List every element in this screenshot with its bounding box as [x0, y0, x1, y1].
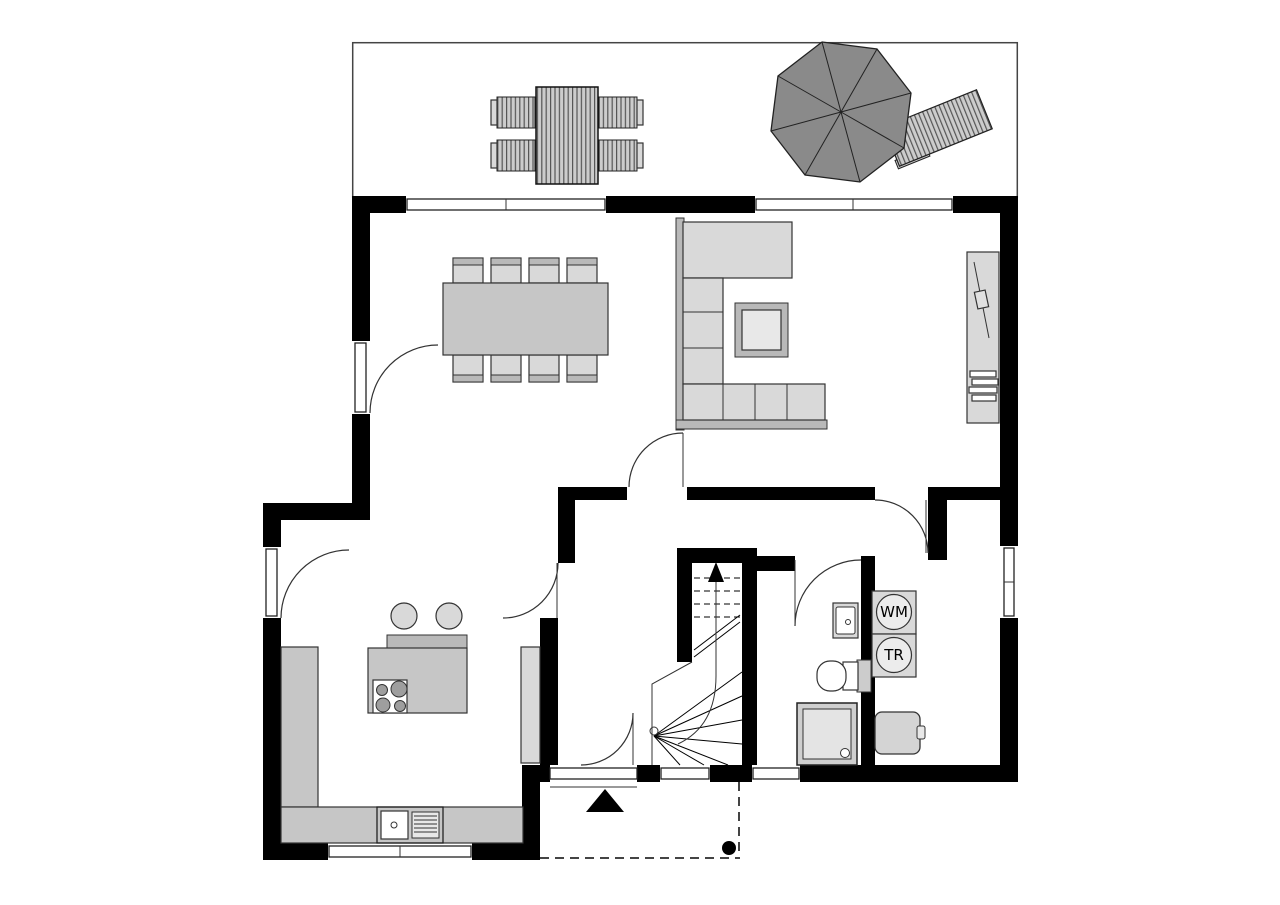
kitchen-counter-icon: [521, 647, 540, 763]
door-kitchen-hall: [503, 563, 558, 618]
bar-stool-icon: [436, 603, 462, 629]
sofa-top-section: [683, 222, 792, 278]
boiler-handle: [917, 726, 925, 739]
dining-chairs-top: [453, 258, 597, 283]
stair-cut-line: [694, 615, 740, 650]
wall-stub-left: [558, 487, 575, 563]
sofa-back-bottom: [676, 420, 827, 429]
sofa-left-section: [683, 278, 723, 384]
staircase-icon: [650, 562, 742, 765]
wall-stub-right: [928, 487, 947, 560]
shower-drain: [841, 749, 850, 758]
boiler-icon: [875, 712, 925, 754]
wall-hall-left: [540, 618, 558, 765]
floor-plan-page: WM TR: [0, 0, 1280, 905]
toilet-bowl: [817, 661, 846, 691]
outdoor-chair-icon: [497, 140, 535, 171]
kitchen-counter-icon: [281, 647, 318, 807]
stair-cut-line: [694, 622, 740, 657]
terrace: [353, 42, 1018, 197]
bar-stool-icon: [391, 603, 417, 629]
toilet-cistern: [857, 660, 871, 692]
outdoor-chair-icon: [599, 140, 637, 171]
outdoor-chair-arm: [637, 100, 643, 125]
dining-set: [443, 258, 608, 382]
outdoor-chair-arm: [491, 143, 497, 168]
washing-machine-icon: WM: [872, 591, 916, 634]
dryer-label: TR: [883, 646, 904, 664]
washing-machine-label: WM: [880, 603, 908, 621]
dining-table-icon: [443, 283, 608, 355]
cooktop-icon: [373, 680, 407, 713]
toilet-icon: [817, 660, 871, 692]
kitchen-island-icon: [368, 635, 467, 713]
outdoor-chair-arm: [637, 143, 643, 168]
wall-openings: [263, 196, 1018, 860]
floor-plan-canvas: WM TR: [0, 0, 1280, 905]
walls: [263, 196, 1018, 860]
wall-entry-connector: [522, 765, 540, 860]
bathroom: [797, 603, 871, 765]
living-dining-room: [443, 218, 999, 430]
stair-up-arrow-icon: [708, 562, 724, 582]
door-utility: [875, 500, 928, 553]
washbasin-icon: [833, 603, 858, 638]
sofa-bottom-section: [683, 384, 825, 420]
wall-bath-top: [757, 556, 795, 571]
outdoor-chair-icon: [599, 97, 637, 128]
utility-room: WM TR: [872, 591, 925, 754]
stair-edge: [652, 662, 692, 765]
dryer-icon: TR: [872, 634, 916, 677]
entrance-porch: [540, 782, 740, 858]
outdoor-table-icon: [536, 87, 598, 184]
outdoor-chair-icon: [497, 97, 535, 128]
door-living: [629, 433, 683, 487]
porch-post-icon: [722, 841, 736, 855]
sink-drainer: [412, 812, 439, 838]
wall-right: [1000, 196, 1018, 782]
kitchen: [281, 603, 540, 843]
entrance-arrow-icon: [586, 789, 624, 812]
coffee-table-icon: [735, 303, 788, 357]
outdoor-chair-arm: [491, 100, 497, 125]
shower-icon: [797, 703, 857, 765]
stair-newel-post: [650, 727, 658, 735]
dining-chairs-bottom: [453, 355, 597, 382]
wall-stair-left: [677, 548, 692, 662]
stair-winder-treads: [654, 672, 742, 765]
tv-sideboard-icon: [967, 252, 999, 423]
wall-stair-right: [742, 548, 757, 782]
windows: [329, 199, 1014, 857]
